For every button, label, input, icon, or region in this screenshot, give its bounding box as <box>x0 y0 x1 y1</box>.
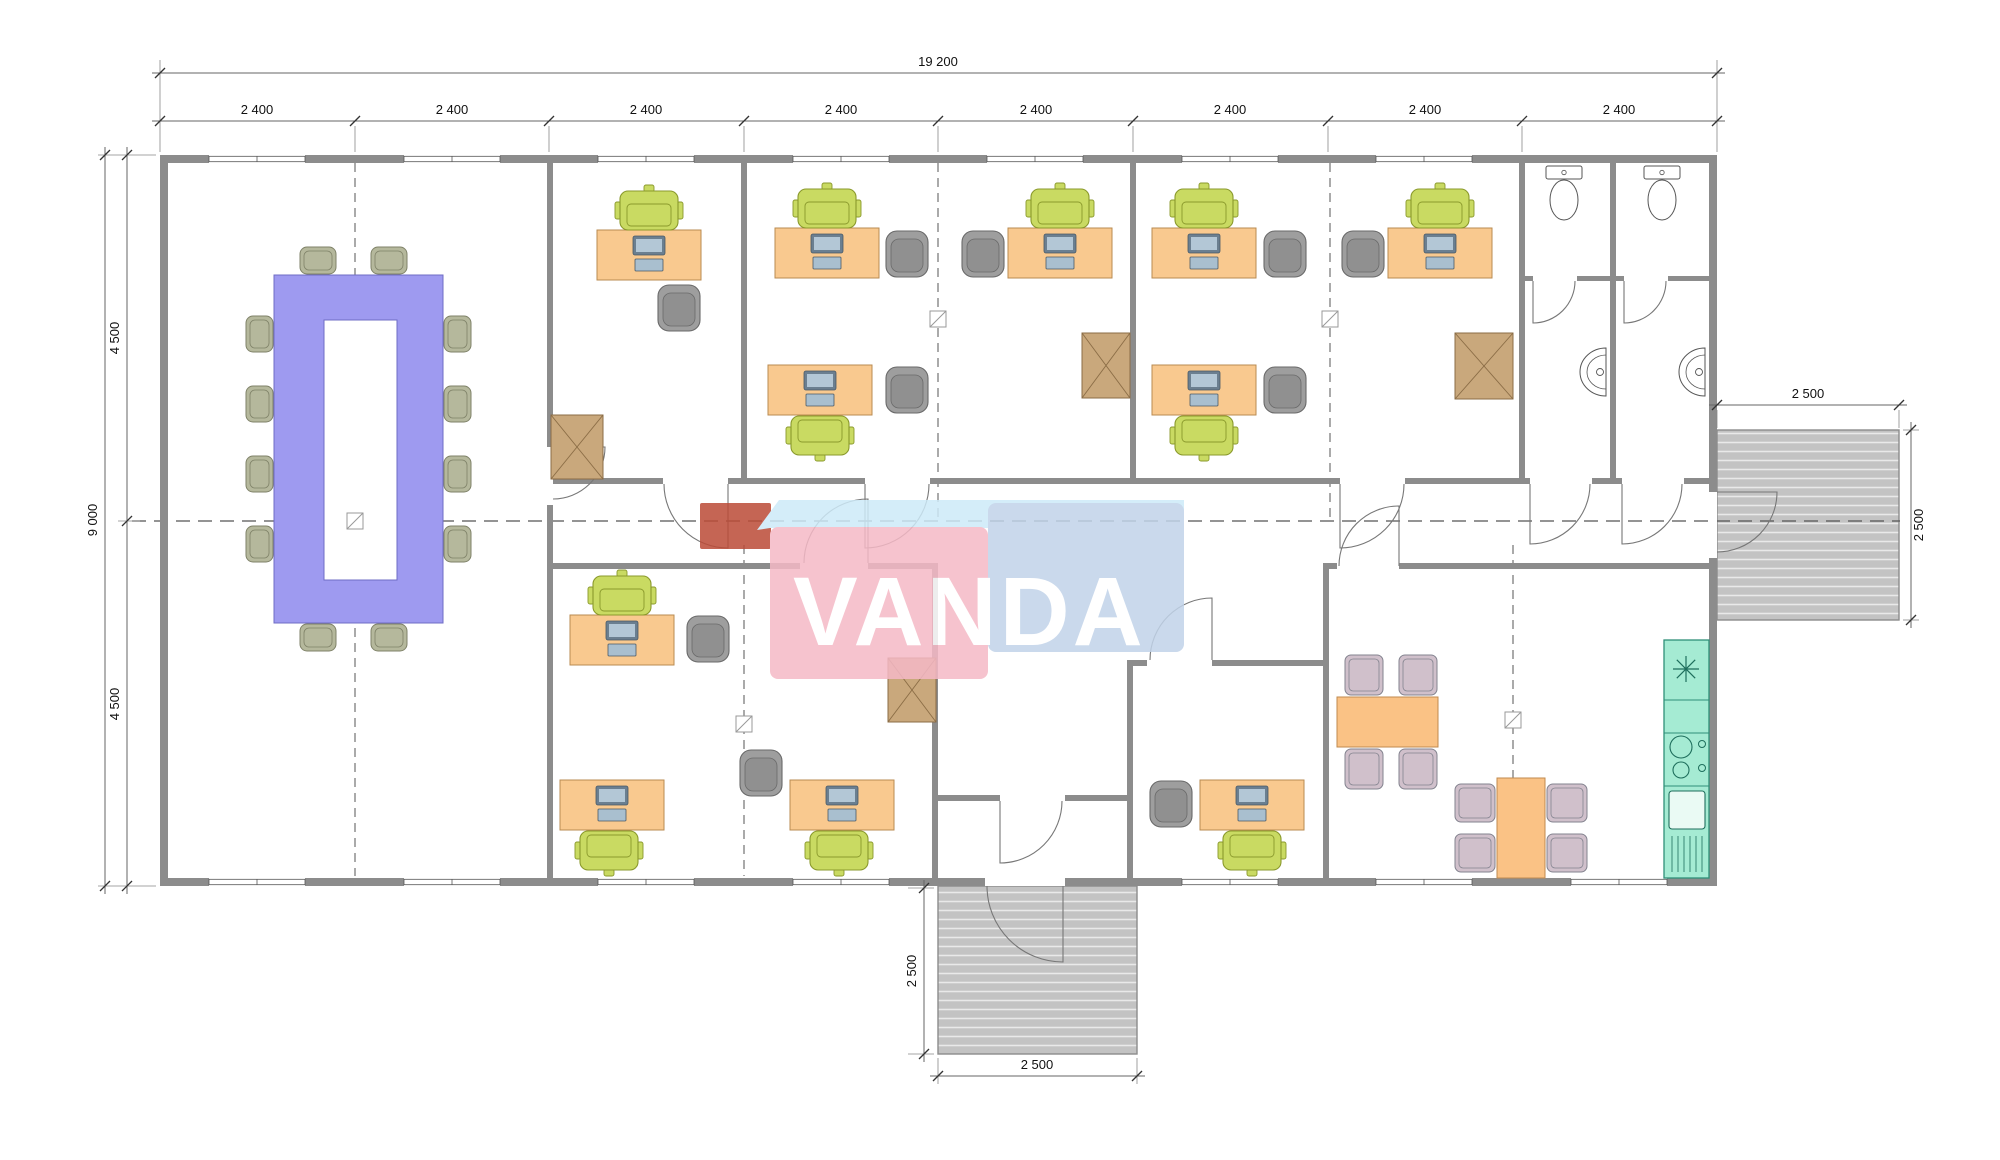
storage-cabinet <box>1082 333 1130 398</box>
desk <box>597 230 701 280</box>
dimension-label: 2 400 <box>630 102 663 117</box>
watermark: VANDA <box>700 500 1184 679</box>
desk-pc <box>804 371 836 406</box>
porch-stairs <box>938 886 1137 1054</box>
dimension: 2 500 <box>1906 422 1926 628</box>
desk <box>790 780 894 830</box>
armchair <box>658 285 700 331</box>
wall <box>547 505 553 878</box>
task-chair <box>615 185 683 230</box>
wall <box>1577 276 1610 281</box>
porch-stairs <box>1717 430 1899 620</box>
wall <box>1709 155 1717 492</box>
wall <box>1130 163 1136 478</box>
wall <box>1329 563 1337 569</box>
task-chair <box>786 416 854 461</box>
task-chair <box>575 831 643 876</box>
door-opening <box>985 878 1065 886</box>
wall <box>553 563 800 569</box>
desk <box>570 615 674 665</box>
armchair <box>886 367 928 413</box>
armchair <box>1342 231 1384 277</box>
dimension: 9 000 <box>85 147 110 894</box>
floor-plan-canvas: 19 2002 4002 4002 4002 4002 4002 4002 40… <box>0 0 2000 1160</box>
conference-chair <box>246 526 273 562</box>
wall <box>160 155 168 886</box>
dimension: 4 5004 500 <box>107 147 132 894</box>
desk-pc <box>633 236 665 271</box>
conference-chair <box>246 456 273 492</box>
conference-chair <box>371 247 407 274</box>
window <box>793 155 889 163</box>
dimension: 2 500 <box>904 880 929 1062</box>
dining-table <box>1497 778 1545 878</box>
wall <box>1616 276 1624 281</box>
dining-chair <box>1547 834 1587 872</box>
dining-chair <box>1345 749 1383 789</box>
task-chair <box>1170 416 1238 461</box>
axis-marker <box>1505 712 1521 728</box>
dining-chair <box>1399 655 1437 695</box>
armchair <box>1150 781 1192 827</box>
window <box>209 878 305 886</box>
window <box>404 878 500 886</box>
dimension: 2 500 <box>930 1057 1145 1081</box>
wall <box>1592 478 1622 484</box>
conference-chair <box>246 386 273 422</box>
dining-table <box>1337 697 1438 747</box>
desk-pc <box>1424 234 1456 269</box>
wall <box>1684 478 1709 484</box>
desk <box>1008 228 1112 278</box>
desk-pc <box>596 786 628 821</box>
desk-pc <box>1044 234 1076 269</box>
dimension: 19 200 <box>152 54 1725 78</box>
armchair <box>740 750 782 796</box>
dimension-label: 2 500 <box>1792 386 1825 401</box>
task-chair <box>1406 183 1474 228</box>
wall <box>1399 563 1709 569</box>
window <box>1182 878 1278 886</box>
window <box>793 878 889 886</box>
desk-pc <box>1188 371 1220 406</box>
window <box>1182 155 1278 163</box>
task-chair <box>805 831 873 876</box>
dimension-label: 2 500 <box>1911 509 1926 542</box>
dining-chair <box>1455 784 1495 822</box>
conference-chair <box>444 386 471 422</box>
conference-chair <box>444 316 471 352</box>
armchair <box>886 231 928 277</box>
wall <box>160 155 1717 163</box>
dimension-label: 2 400 <box>1409 102 1442 117</box>
window <box>598 155 694 163</box>
plant-icon <box>1673 656 1699 682</box>
conference-chair <box>371 624 407 651</box>
desk <box>560 780 664 830</box>
desk-pc <box>826 786 858 821</box>
conference-chair <box>444 456 471 492</box>
conference-table <box>274 275 443 623</box>
wall <box>1065 795 1127 801</box>
dimension-label: 2 400 <box>825 102 858 117</box>
door-opening <box>1709 492 1717 558</box>
wall <box>1519 163 1525 478</box>
task-chair <box>1026 183 1094 228</box>
conference-chair <box>246 316 273 352</box>
dimension-label: 2 500 <box>904 955 919 988</box>
desk-pc <box>606 621 638 656</box>
wall <box>728 478 865 484</box>
window <box>404 155 500 163</box>
desk <box>1152 365 1256 415</box>
dimension-label: 19 200 <box>918 54 958 69</box>
window <box>209 155 305 163</box>
wall <box>1525 276 1533 281</box>
dimension-label: 2 400 <box>241 102 274 117</box>
dimension: 2 4002 4002 4002 4002 4002 4002 4002 400 <box>152 102 1725 126</box>
conference-chair <box>444 526 471 562</box>
task-chair <box>793 183 861 228</box>
dining-chair <box>1547 784 1587 822</box>
window <box>1571 878 1667 886</box>
storage-cabinet <box>1455 333 1513 399</box>
axis-marker <box>1322 311 1338 327</box>
armchair <box>687 616 729 662</box>
desk <box>775 228 879 278</box>
wall <box>1405 478 1530 484</box>
wall <box>741 163 747 478</box>
desk <box>768 365 872 415</box>
wall <box>1668 276 1709 281</box>
task-chair <box>588 570 656 615</box>
wall <box>160 878 1717 886</box>
desk <box>1152 228 1256 278</box>
dimension-label: 9 000 <box>85 504 100 537</box>
floor-plan: 19 2002 4002 4002 4002 4002 4002 4002 40… <box>0 0 2000 1160</box>
storage-cabinet <box>551 415 603 479</box>
window <box>598 878 694 886</box>
wall <box>1610 163 1616 478</box>
axis-marker <box>930 311 946 327</box>
dimension-label: 2 400 <box>1603 102 1636 117</box>
watermark-text: VANDA <box>793 557 1146 666</box>
dimension-label: 2 400 <box>1020 102 1053 117</box>
conference-chair <box>300 247 336 274</box>
wall <box>1709 558 1717 886</box>
armchair <box>1264 231 1306 277</box>
dimension-label: 2 400 <box>1214 102 1247 117</box>
wall <box>1127 660 1133 878</box>
dimension-label: 2 400 <box>436 102 469 117</box>
wall <box>1323 563 1329 878</box>
desk-pc <box>811 234 843 269</box>
wall <box>930 478 1340 484</box>
axis-marker <box>736 716 752 732</box>
desk <box>1200 780 1304 830</box>
dimension-label: 4 500 <box>107 688 122 721</box>
dining-chair <box>1399 749 1437 789</box>
window <box>987 155 1083 163</box>
dimension-label: 4 500 <box>107 322 122 355</box>
dining-chair <box>1455 834 1495 872</box>
wall <box>1212 660 1323 666</box>
wall <box>547 163 553 447</box>
task-chair <box>1218 831 1286 876</box>
conference-chair <box>300 624 336 651</box>
armchair <box>1264 367 1306 413</box>
desk <box>1388 228 1492 278</box>
window <box>1376 878 1472 886</box>
kitchen-counter <box>1664 640 1709 878</box>
armchair <box>962 231 1004 277</box>
desk-pc <box>1236 786 1268 821</box>
dimension: 2 500 <box>1709 386 1907 410</box>
desk-pc <box>1188 234 1220 269</box>
axis-marker <box>347 513 363 529</box>
dimension-label: 2 500 <box>1021 1057 1054 1072</box>
dining-chair <box>1345 655 1383 695</box>
task-chair <box>1170 183 1238 228</box>
wall <box>938 795 1000 801</box>
window <box>1376 155 1472 163</box>
